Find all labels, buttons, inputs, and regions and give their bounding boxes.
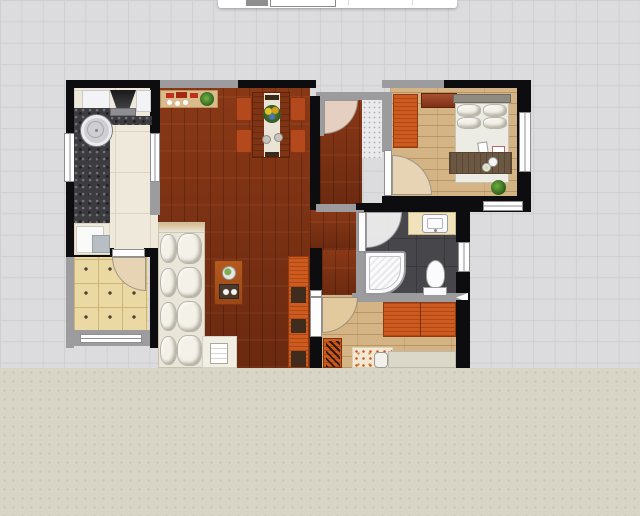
kitchen-hood-vent bbox=[110, 108, 136, 116]
tray-cup-2 bbox=[231, 289, 237, 295]
kitchen-granite-strip[interactable] bbox=[110, 116, 152, 125]
toolbar-sliver bbox=[218, 0, 457, 8]
bedroom1-window-bottom[interactable] bbox=[483, 201, 523, 211]
sideboard-dish-1 bbox=[167, 100, 172, 105]
bedroom1-pillow-2 bbox=[483, 104, 507, 117]
wall-living-right-upper[interactable] bbox=[310, 96, 320, 210]
balcony-door-leaf[interactable] bbox=[112, 249, 145, 257]
bedroom1-throw-blanket[interactable] bbox=[449, 152, 512, 174]
tv-cabinet-slot-3 bbox=[291, 351, 306, 367]
beige-floor-slab[interactable] bbox=[0, 368, 640, 516]
wall-bedroom1-left[interactable] bbox=[382, 100, 392, 152]
toolbar-gray-chip[interactable] bbox=[246, 0, 268, 6]
wall-bedroom2-left[interactable] bbox=[310, 337, 322, 368]
toilet-bowl[interactable] bbox=[426, 260, 445, 288]
bedroom1-bed-headboard[interactable] bbox=[453, 94, 511, 103]
tv-cabinet[interactable] bbox=[288, 256, 309, 368]
bedroom1-plant[interactable] bbox=[491, 180, 506, 195]
wall-bedroom2-right[interactable] bbox=[456, 300, 470, 368]
kitchen-appliance[interactable] bbox=[92, 235, 110, 253]
bedroom1-wardrobe[interactable] bbox=[393, 94, 418, 148]
kitchen-upper-cabinet-right[interactable] bbox=[136, 90, 151, 112]
wall-kitchen-right-gray[interactable] bbox=[150, 182, 160, 215]
shower-inner-arc bbox=[369, 256, 401, 290]
sofa-seat-cushion-4 bbox=[177, 335, 202, 366]
foyer-tile[interactable] bbox=[362, 100, 382, 158]
flower-centerpiece bbox=[263, 105, 281, 123]
hallway-lower-floor[interactable] bbox=[322, 250, 358, 296]
kitchen-pass-window[interactable] bbox=[150, 133, 160, 182]
sideboard-red-item-3 bbox=[190, 93, 198, 98]
sofa-seat-cushion-2 bbox=[177, 267, 202, 298]
cabinet-plant-shadow bbox=[326, 341, 340, 367]
place-setting-2 bbox=[274, 133, 283, 142]
sofa-seat-cushion-1 bbox=[177, 233, 202, 264]
hallway-floor[interactable] bbox=[310, 210, 362, 250]
bedroom1-pillow-3 bbox=[457, 117, 481, 129]
toilet-tank[interactable] bbox=[423, 287, 447, 296]
tv-cabinet-slot-2 bbox=[291, 319, 306, 333]
wall-end-cap bbox=[310, 290, 322, 297]
bedroom1-door-leaf[interactable] bbox=[384, 150, 392, 196]
bedroom1-pillow-4 bbox=[483, 117, 507, 129]
ottoman-magazine bbox=[210, 343, 228, 364]
toolbar-input-box[interactable] bbox=[270, 0, 336, 7]
wall-left-upper[interactable] bbox=[66, 88, 74, 133]
toolbar-separator-1 bbox=[348, 0, 349, 5]
dresser-seam bbox=[420, 303, 421, 336]
sink-drain-dot bbox=[95, 129, 98, 132]
sofa-back-cushion-3 bbox=[160, 302, 177, 331]
coffee-table-plate bbox=[222, 266, 236, 280]
sofa-seat-cushion-3 bbox=[177, 301, 202, 332]
dining-table[interactable] bbox=[252, 92, 290, 158]
bedroom1-tray-plate bbox=[482, 163, 491, 172]
bedroom1-pillow-1 bbox=[457, 104, 481, 117]
bedroom2-dresser[interactable] bbox=[383, 302, 456, 337]
coffee-table[interactable] bbox=[214, 260, 243, 305]
bedroom2-door-leaf[interactable] bbox=[310, 297, 322, 337]
sideboard-red-item-1 bbox=[166, 93, 174, 98]
wall-left-mid[interactable] bbox=[66, 182, 74, 256]
sofa-back-cushion-4 bbox=[160, 336, 177, 365]
bathroom-sink[interactable] bbox=[422, 214, 448, 233]
table-runner bbox=[264, 93, 280, 157]
dining-chair-left-1[interactable] bbox=[236, 97, 252, 121]
floorplan-canvas bbox=[0, 0, 640, 516]
sofa-back-cushion-2 bbox=[160, 268, 177, 297]
sideboard-red-item-2 bbox=[176, 92, 187, 98]
dining-chair-left-2[interactable] bbox=[236, 129, 252, 153]
tray-cup-1 bbox=[223, 289, 229, 295]
wall-kitchen-right-upper[interactable] bbox=[150, 88, 160, 133]
bedroom1-shelf[interactable] bbox=[421, 93, 457, 108]
wall-bedroom1-top-gray[interactable] bbox=[382, 80, 444, 88]
sideboard-plant[interactable] bbox=[200, 92, 214, 106]
kitchen-round-sink[interactable] bbox=[81, 115, 112, 146]
bathroom-window[interactable] bbox=[458, 242, 470, 272]
wall-kitchen-top[interactable] bbox=[66, 80, 160, 88]
wall-bathroom-right-upper[interactable] bbox=[456, 203, 470, 242]
sofa-back-cushion-1 bbox=[160, 234, 177, 263]
balcony-window[interactable] bbox=[80, 334, 142, 343]
sink-basin bbox=[427, 218, 443, 229]
bedroom2-cabinet[interactable] bbox=[323, 338, 342, 368]
dining-chair-right-1[interactable] bbox=[290, 97, 306, 121]
wall-living-top-black[interactable] bbox=[238, 80, 316, 88]
dining-chair-right-2[interactable] bbox=[290, 129, 306, 153]
wall-living-top-gray[interactable] bbox=[160, 80, 238, 88]
bedroom2-bed[interactable] bbox=[388, 351, 456, 368]
ottoman[interactable] bbox=[202, 336, 237, 368]
sofa-armrest-top bbox=[159, 223, 204, 233]
bedroom2-pillow bbox=[374, 352, 388, 368]
sink-faucet-dot bbox=[434, 229, 437, 232]
toolbar-separator-2 bbox=[412, 0, 413, 5]
table-placemat-top bbox=[265, 95, 279, 100]
tv-cabinet-slot-1 bbox=[291, 287, 306, 303]
wall-bathroom-top[interactable] bbox=[356, 203, 412, 212]
wall-living-right-lower[interactable] bbox=[310, 248, 322, 290]
coffee-table-tray bbox=[219, 284, 239, 299]
bathroom-door-leaf[interactable] bbox=[358, 212, 366, 252]
place-setting-1 bbox=[262, 135, 271, 144]
table-placemat-bottom bbox=[265, 152, 279, 157]
wall-entry-top[interactable] bbox=[316, 92, 392, 100]
bedroom1-window-right[interactable] bbox=[519, 112, 531, 172]
